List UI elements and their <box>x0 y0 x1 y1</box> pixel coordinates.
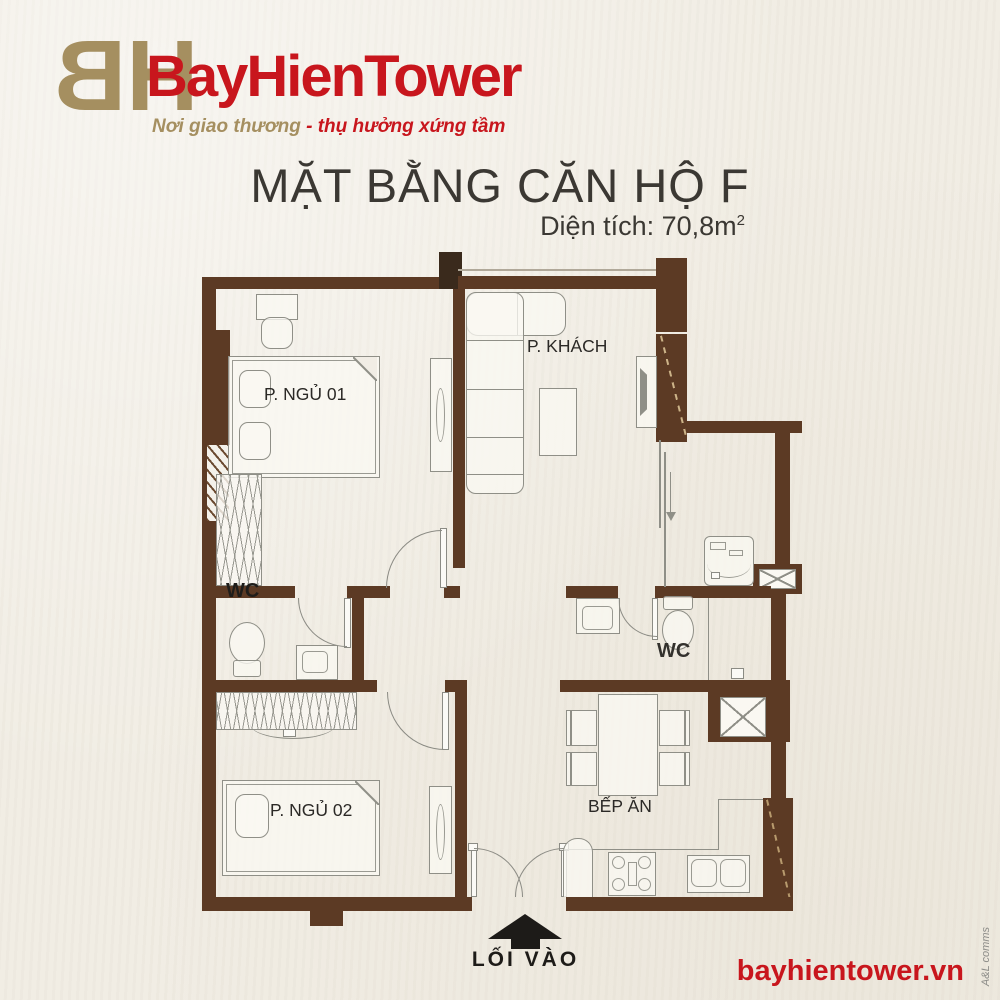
bed-fold-corner <box>353 357 377 381</box>
chair-back <box>684 711 686 745</box>
chair-back <box>684 753 686 785</box>
washer-panel <box>729 550 743 556</box>
sink-basin <box>582 606 613 630</box>
logo-letter-b: B <box>60 26 126 126</box>
bedroom2-door-arc <box>387 692 445 750</box>
wall <box>771 594 786 682</box>
wall <box>687 421 802 433</box>
wall <box>202 330 230 445</box>
sink-basin <box>691 859 717 887</box>
counter-edge <box>718 800 719 850</box>
wc1-door-arc <box>298 598 347 647</box>
washer-panel <box>710 542 726 550</box>
kitchen-tall-cabinet <box>763 798 793 910</box>
wc2-divider <box>708 598 709 680</box>
toilet-tank <box>663 596 693 610</box>
burner <box>612 878 625 891</box>
shaft-box <box>720 697 766 737</box>
stove <box>608 852 656 896</box>
floor-drain <box>731 668 744 679</box>
washer-knob <box>711 572 720 579</box>
counter-edge <box>718 799 763 800</box>
wall <box>455 692 467 897</box>
coffee-table <box>539 388 577 456</box>
room-label-bedroom1: P. NGỦ 01 <box>264 384 346 405</box>
dresser-handle <box>436 388 445 442</box>
burner <box>638 878 651 891</box>
wall-bump <box>310 911 343 926</box>
entrance-label: LỐI VÀO <box>448 948 603 972</box>
burner <box>612 856 625 869</box>
wc2-door-arc <box>618 598 657 637</box>
sofa <box>466 292 524 494</box>
cabinet-diagonal <box>766 800 793 908</box>
window-line <box>458 269 656 271</box>
chair-back <box>570 711 572 745</box>
page-title: MẶT BẰNG CĂN HỘ F <box>0 158 1000 213</box>
room-label-wc1: WC <box>226 580 259 603</box>
area-subtitle: Diện tích: 70,8m2 <box>0 211 745 242</box>
room-label-wc2: WC <box>657 640 690 663</box>
tv <box>640 368 647 416</box>
room-label-kitchen: BẾP ĂN <box>588 796 652 817</box>
wall <box>566 897 793 911</box>
wall <box>202 897 472 911</box>
wall <box>347 586 390 598</box>
sofa-line <box>466 474 524 475</box>
sofa-line <box>466 437 524 438</box>
entrance-arrow-icon <box>488 914 562 939</box>
wall <box>771 742 786 800</box>
wall-stub <box>445 680 467 692</box>
pillow <box>235 794 269 838</box>
column <box>656 258 687 332</box>
wall <box>453 289 465 568</box>
sliding-door-line <box>659 440 661 528</box>
wardrobe <box>216 474 262 586</box>
dining-table <box>598 694 658 796</box>
chair-back <box>570 753 572 785</box>
chair <box>261 317 293 349</box>
closet-panel <box>656 334 687 442</box>
wall <box>202 277 458 289</box>
brand-name: BayHienTower <box>146 48 521 106</box>
room-label-bedroom2: P. NGỦ 02 <box>270 800 352 821</box>
area-value: Diện tích: 70,8m <box>540 211 737 241</box>
tagline-red: - thụ hưởng xứng tầm <box>306 116 505 137</box>
agency-credit: A&L comms <box>980 927 992 986</box>
wall <box>352 598 364 680</box>
entry-door-right-arc <box>515 848 564 897</box>
sofa-line <box>466 389 524 390</box>
counter-end-cap <box>563 838 593 897</box>
wall <box>560 680 790 692</box>
bedroom1-door-arc <box>386 530 442 588</box>
sliding-door-arrow <box>670 472 671 514</box>
sink-basin <box>302 651 328 673</box>
toilet-bowl <box>229 622 265 664</box>
wall <box>202 680 377 692</box>
dresser-handle <box>436 804 445 860</box>
bed-fold-corner <box>355 781 379 805</box>
wall <box>566 586 618 598</box>
cabinet-knob <box>283 729 296 737</box>
stove-center <box>628 862 637 886</box>
wall <box>775 433 790 566</box>
toilet-tank <box>233 660 261 677</box>
kitchen-sink <box>687 855 750 893</box>
pillow <box>239 422 271 460</box>
sink-basin <box>720 859 746 887</box>
area-sup: 2 <box>737 212 745 229</box>
closet-diagonal <box>660 336 688 441</box>
room-label-living: P. KHÁCH <box>527 336 607 357</box>
wall <box>458 276 656 289</box>
burner <box>638 856 651 869</box>
website-link[interactable]: bayhientower.vn <box>737 955 964 988</box>
sofa-line <box>466 340 524 341</box>
brand-tagline: Nơi giao thương - thụ hưởng xứng tầm <box>152 116 505 138</box>
tagline-gold: Nơi giao thương <box>152 116 301 137</box>
sliding-door-arrow-tip <box>666 512 676 521</box>
